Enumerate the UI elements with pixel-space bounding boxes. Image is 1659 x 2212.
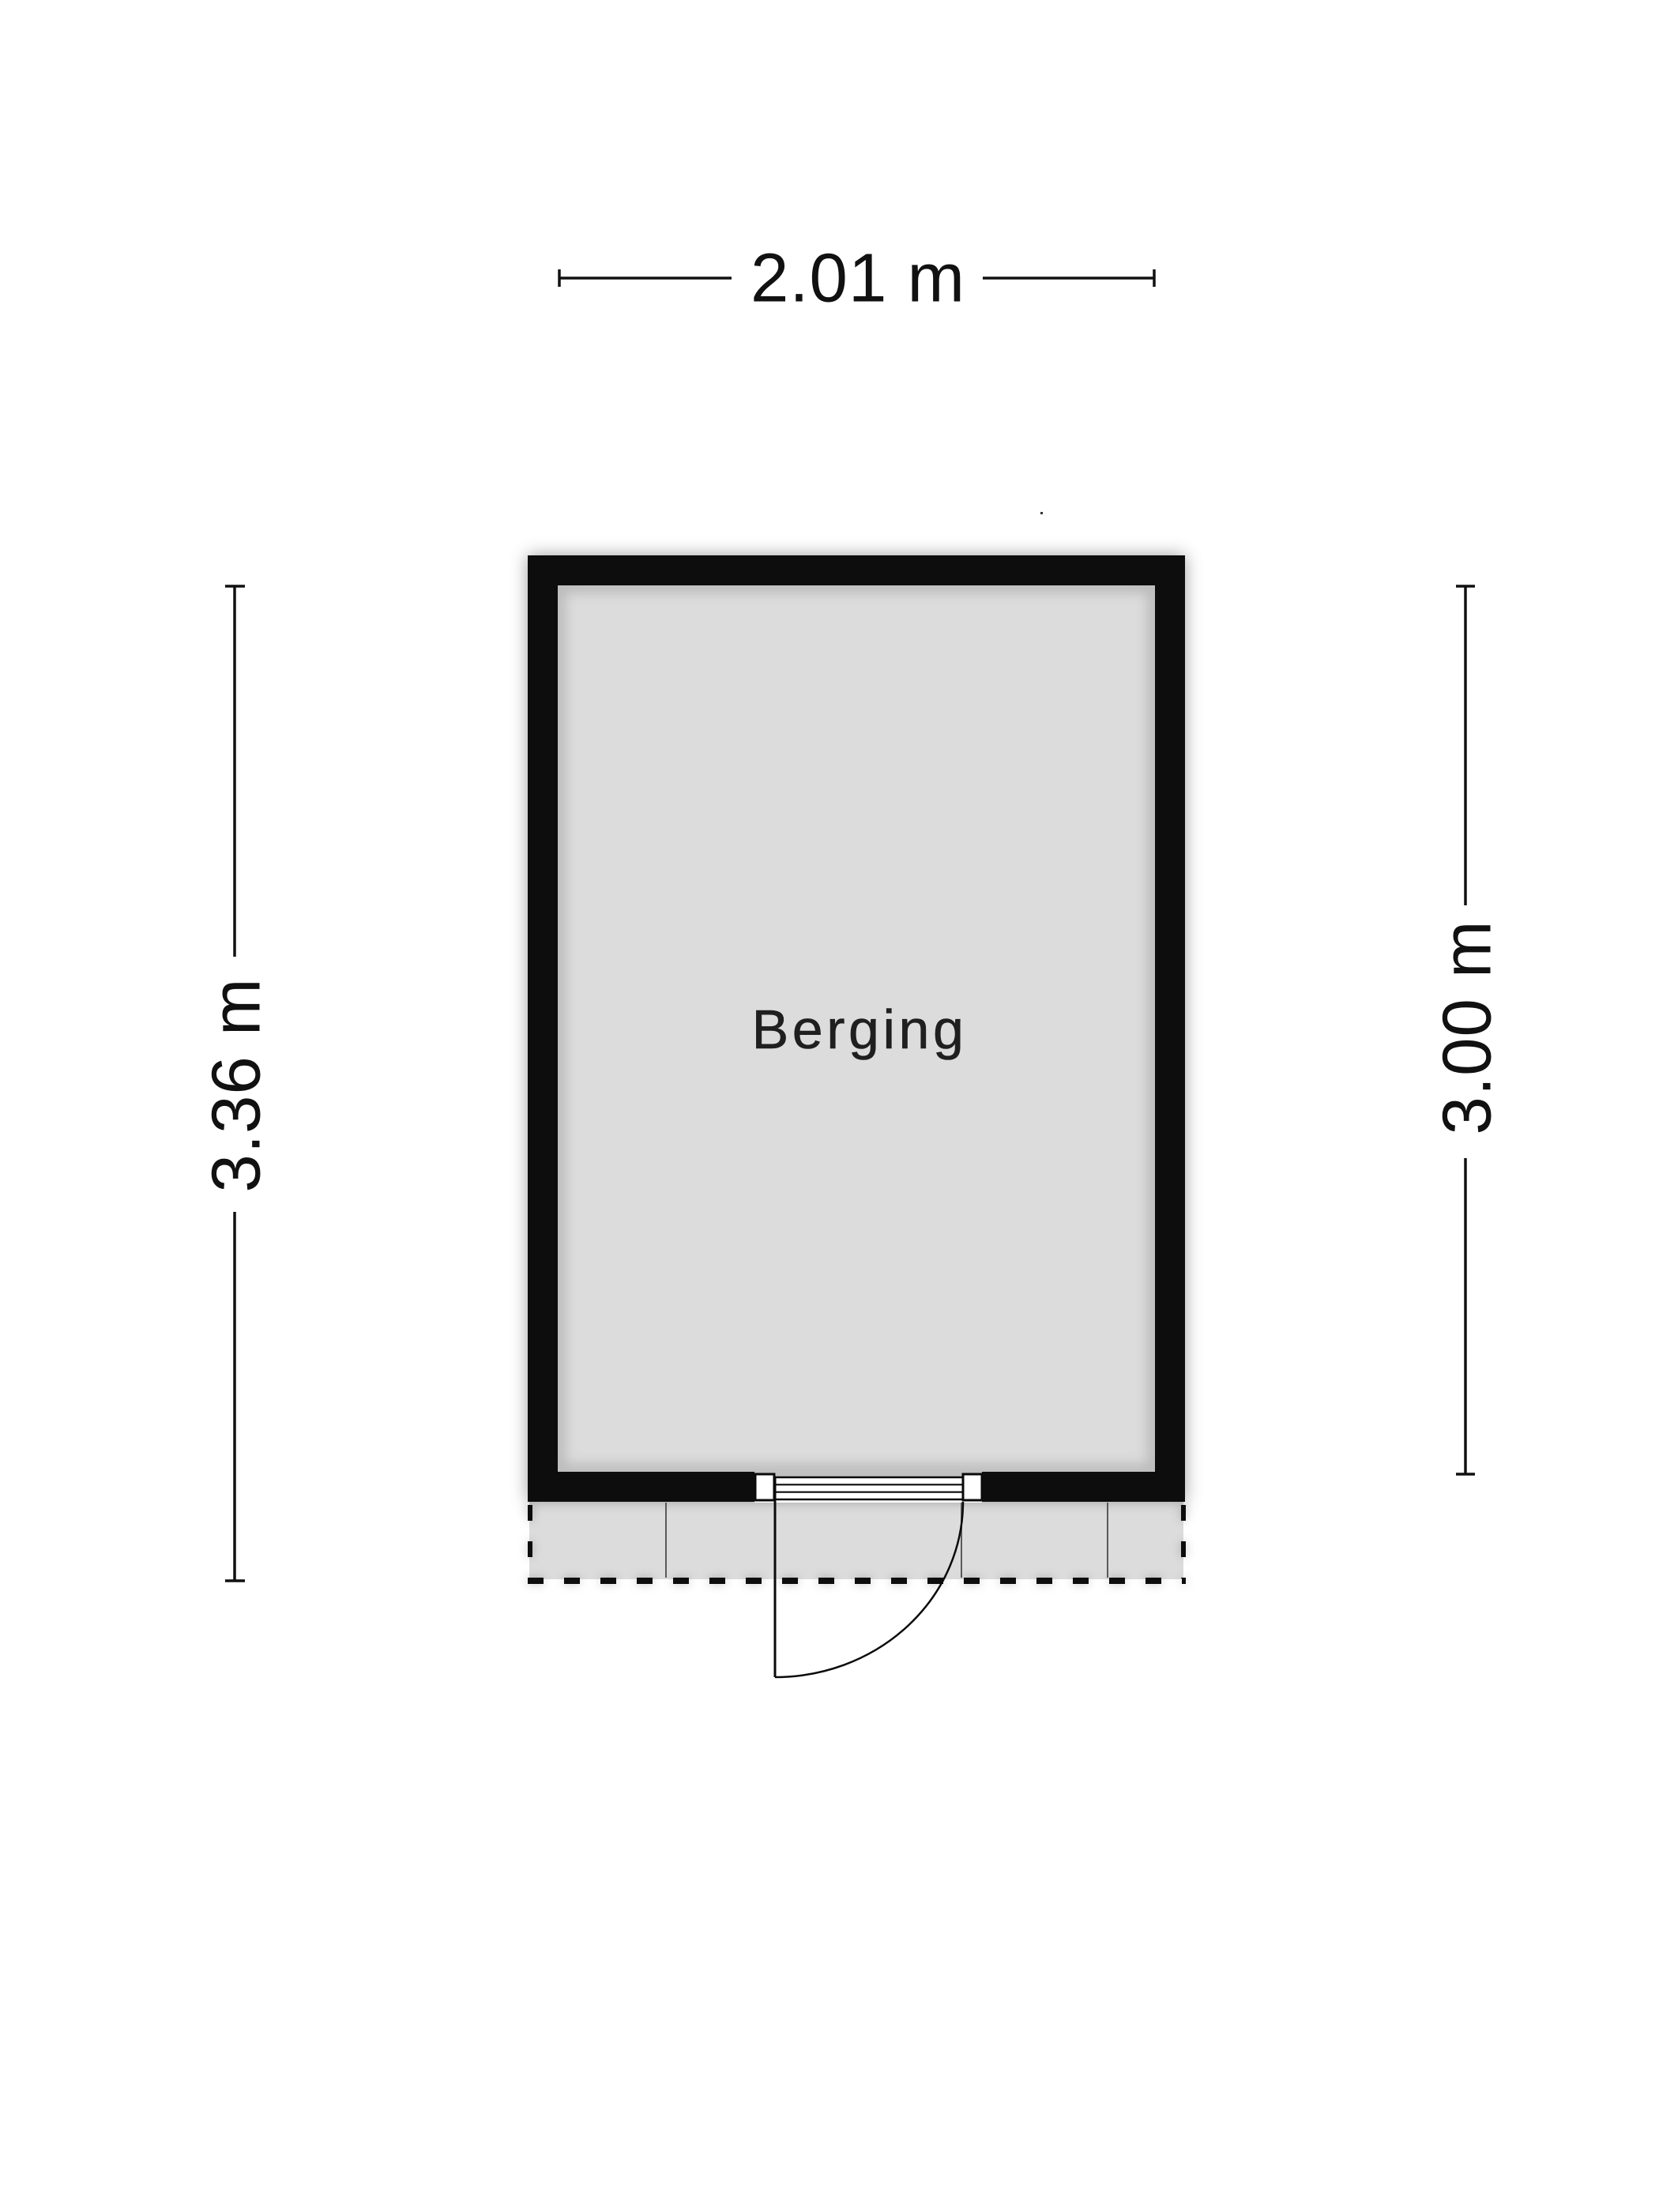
svg-text:Berging: Berging xyxy=(752,999,968,1060)
svg-text:3.00 m: 3.00 m xyxy=(1429,920,1506,1135)
svg-text:3.36 m: 3.36 m xyxy=(198,978,275,1193)
svg-text:2.01 m: 2.01 m xyxy=(750,240,965,317)
